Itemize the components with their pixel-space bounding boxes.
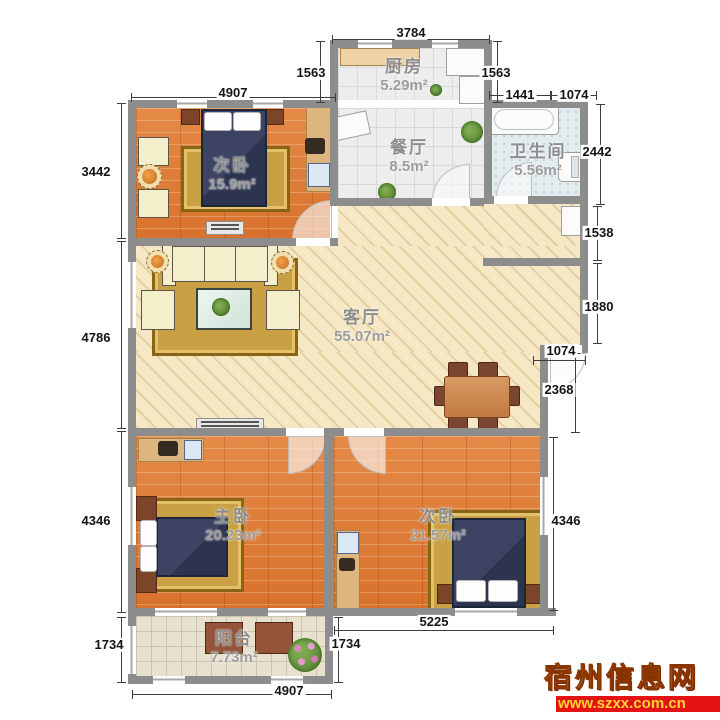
bedroom-a-tv-bench xyxy=(206,221,244,235)
armchair-left xyxy=(141,290,175,330)
door-gap-bedroom-a xyxy=(296,238,330,246)
room-name-bathroom: 卫生间 xyxy=(510,137,567,162)
dim-label-3784-0: 3784 xyxy=(395,26,428,40)
dining-table xyxy=(444,376,510,418)
dim-label-1734-10: 1734 xyxy=(93,638,126,652)
room-area-bedroom-a: 15.9m² xyxy=(208,176,256,193)
window-bedroom-a-2 xyxy=(253,100,283,108)
dim-label-1074-3: 1074 xyxy=(558,88,591,102)
dim-line-4346-9 xyxy=(121,431,122,613)
plant-stand-right xyxy=(271,251,294,274)
window-living-left xyxy=(128,262,136,328)
wall-foyer-stub xyxy=(483,258,588,266)
dim-label-1880-12: 1880 xyxy=(583,300,616,314)
dim-label-4786-8: 4786 xyxy=(80,331,113,345)
dim-label-1538-11: 1538 xyxy=(583,226,616,240)
bedroom-b-pillow-left xyxy=(456,580,486,602)
door-gap-dining xyxy=(432,198,470,206)
room-label-bathroom: 卫生间5.56m² xyxy=(510,137,567,179)
watermark-site-url: www.szxx.com.cn xyxy=(556,696,720,712)
dim-label-3442-7: 3442 xyxy=(80,165,113,179)
room-area-living: 55.07m² xyxy=(334,328,390,345)
dim-label-1563-4: 1563 xyxy=(295,66,328,80)
master-dresser-item xyxy=(158,441,178,456)
bedroom-a-chair-top xyxy=(138,137,169,166)
dim-label-4907-1: 4907 xyxy=(217,86,250,100)
room-label-living: 客厅55.07m² xyxy=(334,303,390,345)
master-chair xyxy=(184,440,202,460)
master-nightstand-top xyxy=(136,496,157,521)
dim-label-2368-14: 2368 xyxy=(543,383,576,397)
room-area-master: 20.23m² xyxy=(205,527,261,544)
bedroom-b-desk-item xyxy=(339,558,355,571)
watermark-url-banner: www.szxx.com.cn xyxy=(556,696,720,712)
window-kitchen-2 xyxy=(432,40,458,48)
wall-left xyxy=(128,100,136,684)
master-pillow-bottom xyxy=(140,546,157,572)
room-area-kitchen: 5.29m² xyxy=(380,77,428,94)
window-master-left xyxy=(128,487,136,545)
sofa-three-seat xyxy=(172,246,268,282)
room-name-living: 客厅 xyxy=(334,303,390,328)
window-kitchen-1 xyxy=(358,40,392,48)
room-name-kitchen: 厨房 xyxy=(380,52,428,77)
window-balcony-bottom-1 xyxy=(153,676,185,684)
room-name-balcony: 阳台 xyxy=(210,624,258,649)
balcony-slider-left xyxy=(155,608,217,616)
coffee-table-plant xyxy=(212,298,230,316)
bedroom-a-computer xyxy=(308,163,330,187)
room-label-balcony: 阳台7.73m² xyxy=(210,624,258,666)
door-gap-bedroom-b xyxy=(344,428,384,436)
balcony-planter-right xyxy=(255,622,293,654)
dim-label-2442-6: 2442 xyxy=(581,145,614,159)
door-gap-bathroom xyxy=(494,196,528,204)
dim-label-1074-13: 1074 xyxy=(545,344,578,358)
room-label-kitchen: 厨房5.29m² xyxy=(380,52,428,94)
dim-label-4907-17: 4907 xyxy=(273,684,306,698)
room-name-bedroom-b: 次卧 xyxy=(410,502,466,527)
bedroom-a-chair-bottom xyxy=(138,189,169,218)
bathtub-inner xyxy=(494,109,554,130)
plant-stand-left xyxy=(146,250,169,273)
bedroom-a-chair-desk xyxy=(305,138,325,154)
bedroom-a-round-table xyxy=(137,164,162,189)
room-name-dining: 餐厅 xyxy=(389,133,428,158)
dim-line-4786-8 xyxy=(121,241,122,429)
bedroom-a-pillow-left xyxy=(204,112,232,131)
opening-kitchen-dining xyxy=(356,100,450,108)
balcony-flowers xyxy=(288,638,322,672)
wall-kitchen-top xyxy=(330,40,492,48)
bedroom-a-nightstand-left xyxy=(181,109,200,125)
dining-plant-top xyxy=(461,121,483,143)
dim-label-5225-16: 5225 xyxy=(418,615,451,629)
foyer-cabinet xyxy=(561,206,581,236)
window-bedroom-a-1 xyxy=(177,100,207,108)
bedroom-b-pillow-right xyxy=(488,580,518,602)
room-label-bedroom-a: 次卧15.9m² xyxy=(208,151,256,193)
room-area-dining: 8.5m² xyxy=(389,158,428,175)
dim-label-4346-9: 4346 xyxy=(80,514,113,528)
watermark-site-name: 宿州信息网 xyxy=(544,656,720,696)
room-area-bedroom-b: 21.57m² xyxy=(410,527,466,544)
toilet-tank xyxy=(571,156,579,178)
wall-bedrooms-divider xyxy=(324,436,334,616)
wall-bedroom-a-top xyxy=(128,100,338,108)
kitchen-fridge xyxy=(459,76,485,104)
window-bedroom-b-right xyxy=(540,477,548,535)
window-bedroom-b-bottom xyxy=(455,608,517,616)
master-pillow-top xyxy=(140,520,157,546)
room-name-master: 主卧 xyxy=(205,502,261,527)
kitchen-plant-icon xyxy=(430,84,442,96)
bedroom-a-nightstand-right xyxy=(265,109,284,125)
dim-label-1563-5: 1563 xyxy=(480,66,513,80)
room-area-bathroom: 5.56m² xyxy=(510,162,567,179)
wall-bedrooms-top xyxy=(128,428,548,436)
bathtub xyxy=(489,104,559,135)
room-label-dining: 餐厅8.5m² xyxy=(389,133,428,175)
bedroom-a-pillow-right xyxy=(233,112,261,131)
room-label-master: 主卧20.23m² xyxy=(205,502,261,544)
dim-label-4346-15: 4346 xyxy=(550,514,583,528)
dim-line-1074-13 xyxy=(533,360,586,361)
dim-label-1734-18: 1734 xyxy=(330,637,363,651)
bedroom-b-computer xyxy=(337,532,359,554)
room-label-bedroom-b: 次卧21.57m² xyxy=(410,502,466,544)
dim-label-1441-2: 1441 xyxy=(504,88,537,102)
dim-line-3442-7 xyxy=(121,103,122,239)
room-name-bedroom-a: 次卧 xyxy=(208,151,256,176)
floor-plan: 厨房5.29m²餐厅8.5m²卫生间5.56m²次卧15.9m²客厅55.07m… xyxy=(0,0,720,720)
window-balcony-left xyxy=(128,626,136,674)
room-area-balcony: 7.73m² xyxy=(210,649,258,666)
watermark: 宿州信息网 www.szxx.com.cn xyxy=(544,656,720,696)
balcony-slider-right xyxy=(268,608,306,616)
wall-bedroom-a-right xyxy=(330,108,338,206)
door-gap-master xyxy=(286,428,324,436)
armchair-right xyxy=(266,290,300,330)
dim-line-5225-16 xyxy=(334,630,554,631)
